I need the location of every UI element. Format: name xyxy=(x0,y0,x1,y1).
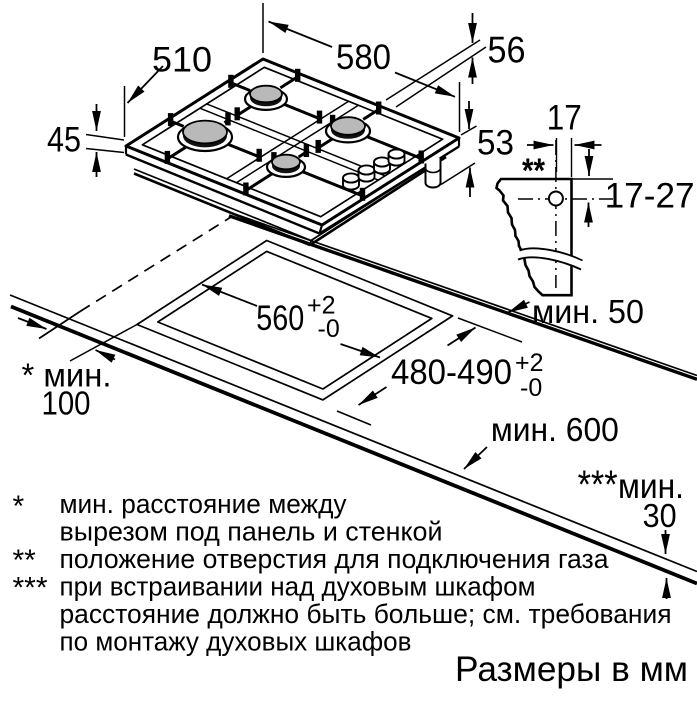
svg-text:***: *** xyxy=(578,463,618,507)
svg-text:мин. 600: мин. 600 xyxy=(491,411,619,448)
svg-text:480-490: 480-490 xyxy=(391,353,512,392)
svg-text:-0: -0 xyxy=(520,374,542,402)
svg-text:при встраивании над духовым шк: при встраивании над духовым шкафом xyxy=(60,572,536,602)
svg-text:30: 30 xyxy=(643,497,677,534)
svg-text:510: 510 xyxy=(152,41,212,80)
svg-text:17-27: 17-27 xyxy=(605,177,695,216)
svg-text:56: 56 xyxy=(488,30,526,71)
svg-text:мин. расстояние между: мин. расстояние между xyxy=(60,489,347,519)
svg-text:17: 17 xyxy=(547,99,582,138)
svg-text:положение отверстия для подклю: положение отверстия для подключения газа xyxy=(60,544,610,574)
svg-text:***: *** xyxy=(13,572,48,605)
svg-text:53: 53 xyxy=(477,124,514,163)
svg-text:580: 580 xyxy=(336,38,391,77)
svg-text:45: 45 xyxy=(47,121,81,160)
svg-text:+2: +2 xyxy=(515,349,544,377)
svg-text:100: 100 xyxy=(42,385,91,422)
svg-text:мин. 50: мин. 50 xyxy=(532,293,644,330)
svg-text:560: 560 xyxy=(256,299,304,338)
svg-text:по монтажу духовых шкафов: по монтажу духовых шкафов xyxy=(60,627,412,657)
svg-text:-0: -0 xyxy=(318,315,340,343)
svg-text:вырезом под панель и стенкой: вырезом под панель и стенкой xyxy=(60,517,443,547)
svg-text:**: ** xyxy=(522,152,546,190)
svg-text:расстояние должно быть больше;: расстояние должно быть больше; см. требо… xyxy=(60,599,672,629)
svg-text:*: * xyxy=(13,490,25,523)
svg-text:Размеры в мм: Размеры в мм xyxy=(455,650,688,689)
